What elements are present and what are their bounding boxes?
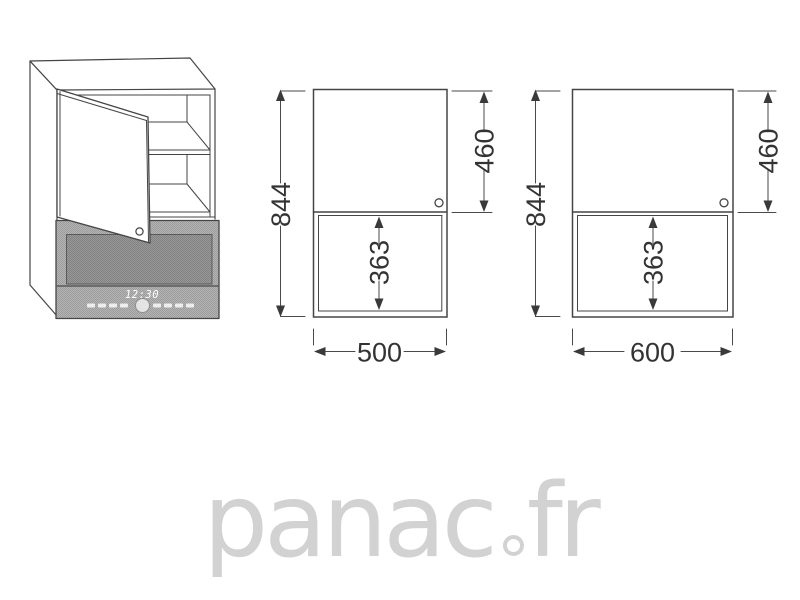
door-knob	[136, 228, 143, 235]
dim-label-460: 460	[469, 128, 499, 173]
front-view-600: 844 460 363 600	[521, 90, 784, 368]
microwave-knob	[136, 299, 150, 313]
left-side-panel	[30, 61, 57, 316]
arrowhead-up	[480, 92, 489, 104]
dim-label-460: 460	[753, 128, 783, 173]
dim-label-844: 844	[521, 182, 551, 227]
dim-total-height: 844	[266, 90, 305, 318]
door-panel	[57, 89, 150, 243]
arrowhead-down	[276, 306, 285, 318]
open-door	[57, 89, 150, 243]
door-knob	[720, 199, 728, 207]
dim-door-height: 460	[452, 91, 499, 213]
arrowhead-up	[764, 92, 773, 104]
arrowhead-right	[435, 347, 447, 356]
dim-label-363: 363	[364, 240, 394, 285]
watermark-dot-icon	[503, 535, 524, 556]
dim-label-363: 363	[638, 240, 668, 285]
watermark-text-left: panac	[203, 462, 493, 581]
cabinet-3d-drawing: 12:30	[30, 58, 219, 319]
watermark-text-right: fr	[527, 462, 597, 581]
door-knob	[435, 199, 443, 207]
front-view-500: 844 460 363 500	[266, 90, 500, 368]
dim-label-844: 844	[266, 182, 296, 227]
watermark-logo: panacfr	[0, 466, 800, 578]
dim-label-600: 600	[630, 337, 675, 367]
arrowhead-left	[314, 347, 326, 356]
arrowhead-down	[531, 306, 540, 318]
diagram-page: 12:30	[0, 0, 800, 600]
dim-width: 500	[314, 329, 447, 367]
dim-width: 600	[573, 329, 733, 367]
arrowhead-left	[573, 347, 585, 356]
microwave-window	[67, 235, 213, 285]
arrowhead-down	[480, 201, 489, 213]
top-panel	[30, 58, 215, 90]
arrowhead-right	[721, 347, 733, 356]
arrowhead-down	[764, 201, 773, 213]
dim-door-height: 460	[738, 91, 783, 213]
dim-label-500: 500	[357, 337, 402, 367]
dim-total-height: 844	[521, 90, 560, 318]
